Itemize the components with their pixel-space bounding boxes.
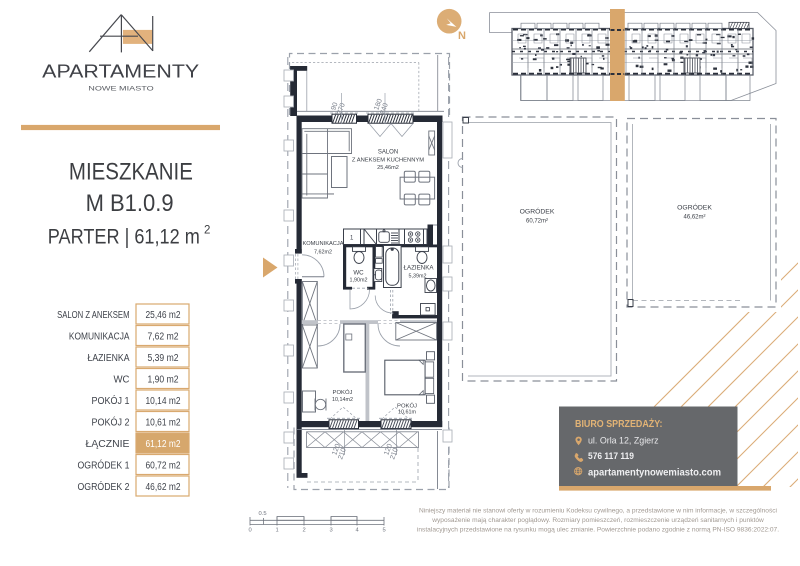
- svg-text:WC: WC: [353, 270, 364, 277]
- svg-text:SALON Z ANEKSEM: SALON Z ANEKSEM: [57, 310, 129, 321]
- svg-text:ŁAZIENKA: ŁAZIENKA: [88, 353, 130, 364]
- svg-text:BIURO SPRZEDAŻY:: BIURO SPRZEDAŻY:: [575, 417, 663, 430]
- svg-text:1,90m2: 1,90m2: [350, 278, 368, 284]
- svg-text:61,12 m2: 61,12 m2: [146, 439, 181, 450]
- svg-text:5: 5: [383, 528, 386, 534]
- svg-text:WC: WC: [114, 375, 130, 386]
- svg-text:5,39m2: 5,39m2: [409, 274, 427, 280]
- svg-text:APARTAMENTY: APARTAMENTY: [42, 62, 199, 82]
- svg-text:POKÓJ: POKÓJ: [333, 389, 353, 396]
- svg-text:MIESZKANIE: MIESZKANIE: [69, 159, 193, 186]
- svg-text:KOMUNIKACJA: KOMUNIKACJA: [302, 241, 343, 247]
- svg-text:SALON: SALON: [378, 150, 398, 156]
- svg-text:wyposażenie mają charakter pog: wyposażenie mają charakter poglądowy. Ro…: [431, 517, 764, 524]
- svg-text:60,72m²: 60,72m²: [526, 219, 548, 225]
- svg-text:OGRÓDEK: OGRÓDEK: [520, 207, 555, 216]
- svg-text:4: 4: [356, 528, 360, 534]
- svg-text:2: 2: [204, 225, 210, 237]
- svg-text:0.5: 0.5: [259, 511, 267, 517]
- svg-text:Niniejszy materiał nie stanowi: Niniejszy materiał nie stanowi oferty w …: [419, 508, 778, 515]
- svg-text:OGRÓDEK 1: OGRÓDEK 1: [78, 459, 130, 472]
- svg-text:apartamentynowemiasto.com: apartamentynowemiasto.com: [588, 468, 721, 479]
- svg-text:N: N: [458, 30, 466, 42]
- svg-text:10,14m2: 10,14m2: [332, 397, 353, 403]
- svg-text:ŁAZIENKA: ŁAZIENKA: [404, 265, 435, 272]
- svg-text:0: 0: [249, 528, 252, 534]
- svg-text:KOMUNIKACJA: KOMUNIKACJA: [69, 332, 130, 343]
- svg-text:5,39 m2: 5,39 m2: [148, 353, 179, 364]
- svg-text:7,62 m2: 7,62 m2: [148, 332, 179, 343]
- svg-text:60,72 m2: 60,72 m2: [146, 461, 181, 472]
- svg-text:1,90 m2: 1,90 m2: [148, 375, 179, 386]
- svg-text:M B1.0.9: M B1.0.9: [86, 190, 174, 217]
- svg-text:46,62m²: 46,62m²: [683, 215, 705, 221]
- svg-text:OGRÓDEK: OGRÓDEK: [677, 203, 712, 212]
- svg-text:10,14 m2: 10,14 m2: [146, 396, 181, 407]
- svg-text:46,62 m2: 46,62 m2: [146, 482, 181, 493]
- svg-text:Z ANEKSEM KUCHENNYM: Z ANEKSEM KUCHENNYM: [352, 158, 424, 164]
- svg-text:25,46 m2: 25,46 m2: [146, 310, 181, 321]
- svg-text:ŁĄCZNIE: ŁĄCZNIE: [86, 439, 130, 450]
- svg-text:576 117 119: 576 117 119: [588, 451, 634, 462]
- svg-text:3: 3: [330, 528, 333, 534]
- svg-text:POKÓJ 1: POKÓJ 1: [92, 394, 130, 407]
- svg-text:25,46m2: 25,46m2: [377, 165, 399, 171]
- svg-text:10,61 m2: 10,61 m2: [146, 418, 181, 429]
- svg-text:NOWE MIASTO: NOWE MIASTO: [88, 86, 154, 93]
- svg-text:ul. Orla 12, Zgierz: ul. Orla 12, Zgierz: [588, 436, 659, 447]
- svg-text:2: 2: [303, 528, 306, 534]
- svg-text:10,61m: 10,61m: [398, 409, 416, 415]
- svg-text:instalacyjnych przedstawione n: instalacyjnych przedstawione na rysunku …: [417, 527, 779, 534]
- svg-text:OGRÓDEK 2: OGRÓDEK 2: [78, 480, 130, 493]
- svg-text:POKÓJ 2: POKÓJ 2: [92, 416, 130, 429]
- svg-text:7,62m2: 7,62m2: [314, 249, 332, 255]
- svg-text:1: 1: [276, 528, 279, 534]
- svg-text:PARTER | 61,12 m: PARTER | 61,12 m: [48, 225, 200, 249]
